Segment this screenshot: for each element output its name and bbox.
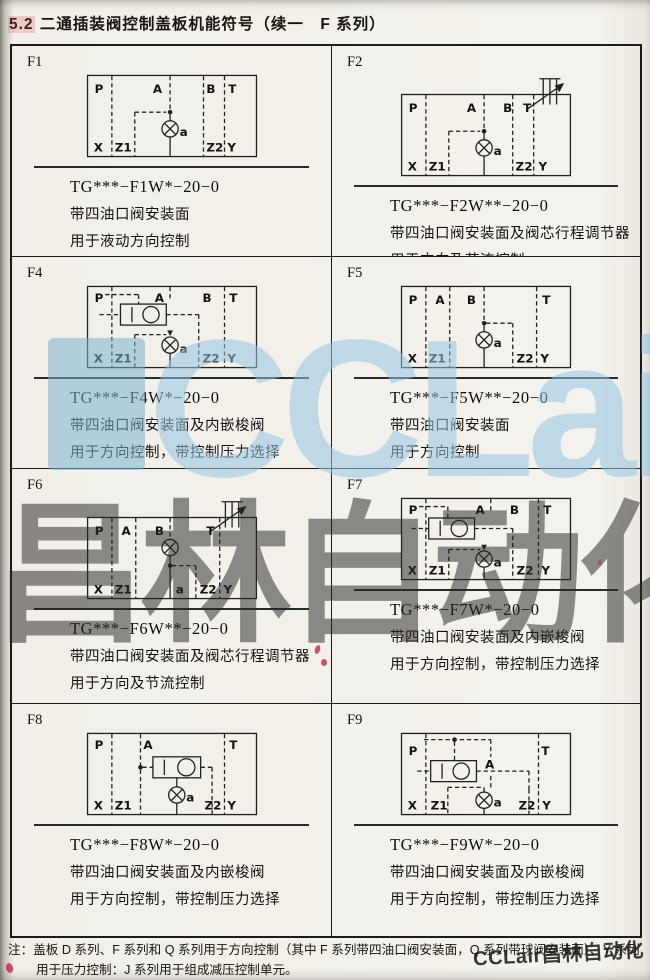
port-label: Y <box>226 351 236 365</box>
title-text: 二通插装阀控制盖板机能符号（续一 F 系列） <box>40 16 386 33</box>
footnote-line1: 盖板 D 系列、F 系列和 Q 系列用于方向控制（其中 F 系列带四油口阀安装面… <box>33 943 639 957</box>
separator-line <box>34 377 308 379</box>
port-label: T <box>543 503 552 517</box>
port-label: X <box>93 798 102 812</box>
hydraulic-diagram-f5: P A B T X Z1 a Z2 Y <box>332 285 640 369</box>
port-label: A <box>485 757 495 771</box>
port-label: P <box>94 291 103 305</box>
port-label: A <box>154 291 164 305</box>
port-label: Z1 <box>429 159 446 173</box>
port-label: P <box>94 82 103 96</box>
port-label: B <box>154 524 163 538</box>
valve-label: a <box>494 336 502 350</box>
port-label: A <box>467 101 477 115</box>
cell-f5: F5 P A B T X Z1 a Z2 Y <box>332 257 640 469</box>
desc1-f9: 带四油口阀安装面及内嵌梭阀 <box>390 861 640 882</box>
valve-label: a <box>494 144 502 158</box>
scanned-catalog-page: 5.2 二通插装阀控制盖板机能符号（续一 F 系列） F1 P A B T X <box>0 0 650 980</box>
port-label: T <box>229 738 238 752</box>
desc2-f6: 用于方向及节流控制 <box>70 672 331 693</box>
cell-f1: F1 P A B T X Z1 a Z2 Y <box>12 46 332 257</box>
cell-f8: F8 P A T X Z1 a <box>12 704 332 936</box>
desc1-f7: 带四油口阀安装面及内嵌梭阀 <box>390 626 640 647</box>
port-label: B <box>510 503 519 517</box>
separator-line <box>354 185 619 187</box>
cell-id-f9: F9 <box>332 704 640 729</box>
valve-label: a <box>179 342 187 356</box>
port-label: Z1 <box>431 798 448 812</box>
model-code-f7: TG***−F7W*−20−0 <box>390 600 640 620</box>
hydraulic-diagram-f7: P A B T X Z1 a Z2 Y <box>332 497 640 581</box>
cell-f4: F4 P A B T X Z1 <box>12 257 332 469</box>
valve-label: a <box>494 556 502 570</box>
model-code-f6: TG***−F6W**−20−0 <box>70 619 331 639</box>
port-label: Y <box>222 582 232 596</box>
port-label: Z2 <box>202 351 219 365</box>
valve-label: a <box>179 125 187 139</box>
port-label: Z1 <box>114 798 131 812</box>
port-label: P <box>409 293 418 307</box>
schematic-f1-svg: P A B T X Z1 a Z2 Y <box>86 74 258 158</box>
hydraulic-diagram-f6: P A B T X Z1 a Z2 Y <box>12 497 331 600</box>
desc1-f1: 带四油口阀安装面 <box>70 203 331 224</box>
desc2-f4: 用于方向控制，带控制压力选择 <box>70 441 331 462</box>
model-code-f8: TG***−F8W*−20−0 <box>70 835 331 855</box>
hydraulic-diagram-f2: P A B T X Z1 a Z2 Y <box>332 74 640 177</box>
desc2-f8: 用于方向控制，带控制压力选择 <box>70 888 331 909</box>
desc2-f2: 用于方向及节流控制 <box>390 249 640 257</box>
port-label: Z1 <box>114 351 131 365</box>
footnote-label: 注： <box>8 943 33 957</box>
desc1-f5: 带四油口阀安装面 <box>390 414 640 435</box>
port-label: Z1 <box>429 563 446 577</box>
port-label: X <box>93 140 102 154</box>
model-code-f5: TG***−F5W**−20−0 <box>390 388 640 408</box>
separator-line <box>34 166 308 168</box>
separator-line <box>354 824 619 826</box>
hydraulic-diagram-f9: P A T X Z1 a Z2 Y <box>332 732 640 816</box>
symbol-table: F1 P A B T X Z1 a Z2 Y <box>10 44 642 938</box>
port-label: X <box>93 582 102 596</box>
cell-f9: F9 P A T X Z1 a <box>332 704 640 936</box>
schematic-f6-svg: P A B T X Z1 a Z2 Y <box>86 497 258 600</box>
desc1-f8: 带四油口阀安装面及内嵌梭阀 <box>70 861 331 882</box>
port-label: A <box>476 503 486 517</box>
cell-id-f6: F6 <box>12 469 331 494</box>
port-label: T <box>206 524 215 538</box>
port-label: B <box>202 291 211 305</box>
cell-id-f4: F4 <box>12 257 331 282</box>
port-label: Z2 <box>517 563 534 577</box>
port-label: Z2 <box>199 582 216 596</box>
section-number: 5.2 <box>8 16 35 33</box>
port-label: A <box>435 293 445 307</box>
port-label: Y <box>226 140 236 154</box>
schematic-f7-svg: P A B T X Z1 a Z2 Y <box>400 497 572 581</box>
schematic-f4-svg: P A B T X Z1 a Z2 Y <box>86 285 258 369</box>
port-label: P <box>409 744 418 758</box>
cell-f6: F6 P A B T X Z1 a Z2 <box>12 469 332 704</box>
footnote-line2: 用于压力控制：J 系列用于组成减压控制单元。 <box>36 961 644 980</box>
pen-mark <box>321 659 327 666</box>
port-label: X <box>408 159 417 173</box>
schematic-f2-svg: P A B T X Z1 a Z2 Y <box>400 74 572 177</box>
port-label: A <box>143 738 153 752</box>
valve-label: a <box>494 795 502 809</box>
schematic-f8-svg: P A T X Z1 a Z2 Y <box>86 732 258 816</box>
desc2-f1: 用于液动方向控制 <box>70 230 331 251</box>
port-label: Z2 <box>206 140 223 154</box>
hydraulic-diagram-f1: P A B T X Z1 a Z2 Y <box>12 74 331 158</box>
port-label: T <box>542 293 551 307</box>
port-label: T <box>229 291 238 305</box>
desc1-f4: 带四油口阀安装面及内嵌梭阀 <box>70 414 331 435</box>
port-label: B <box>503 101 512 115</box>
schematic-f9-svg: P A T X Z1 a Z2 Y <box>400 732 572 816</box>
port-label: Z2 <box>516 159 533 173</box>
separator-line <box>34 608 308 610</box>
port-label: T <box>523 101 532 115</box>
separator-line <box>354 377 619 379</box>
port-label: Z1 <box>429 351 446 365</box>
port-label: Z2 <box>518 798 535 812</box>
port-label: B <box>467 293 476 307</box>
port-label: Z1 <box>114 582 131 596</box>
model-code-f1: TG***−F1W*−20−0 <box>70 177 331 197</box>
separator-line <box>34 824 308 826</box>
cell-id-f7: F7 <box>332 469 640 494</box>
page-title: 5.2 二通插装阀控制盖板机能符号（续一 F 系列） <box>8 12 608 34</box>
port-label: P <box>409 101 418 115</box>
port-label: Z2 <box>517 351 534 365</box>
port-label: X <box>93 351 102 365</box>
port-label: X <box>408 563 417 577</box>
desc1-f2: 带四油口阀安装面及阀芯行程调节器 <box>390 222 640 243</box>
port-label: Y <box>537 159 547 173</box>
cell-f7: F7 P A B T X Z1 <box>332 469 640 704</box>
port-label: Y <box>226 798 236 812</box>
footnote: 注：盖板 D 系列、F 系列和 Q 系列用于方向控制（其中 F 系列带四油口阀安… <box>8 941 644 980</box>
cell-f2: F2 P A B T X Z1 a <box>332 46 640 257</box>
port-label: P <box>94 524 103 538</box>
valve-label: a <box>186 791 194 805</box>
port-label: B <box>206 82 215 96</box>
model-code-f9: TG***−F9W*−20−0 <box>390 835 640 855</box>
hydraulic-diagram-f8: P A T X Z1 a Z2 Y <box>12 732 331 816</box>
desc2-f7: 用于方向控制，带控制压力选择 <box>390 653 640 674</box>
model-code-f2: TG***−F2W**−20−0 <box>390 196 640 216</box>
port-label: X <box>408 798 417 812</box>
port-label: P <box>409 503 418 517</box>
desc2-f9: 用于方向控制，带控制压力选择 <box>390 888 640 909</box>
port-label: T <box>541 744 550 758</box>
schematic-f5-svg: P A B T X Z1 a Z2 Y <box>400 285 572 369</box>
port-label: P <box>94 738 103 752</box>
model-code-f4: TG***−F4W*−20−0 <box>70 388 331 408</box>
port-label: X <box>408 351 417 365</box>
port-label: Y <box>540 563 550 577</box>
cell-id-f8: F8 <box>12 704 331 729</box>
port-label: A <box>121 524 131 538</box>
desc2-f5: 用于方向控制 <box>390 441 640 462</box>
port-label: Z2 <box>204 798 221 812</box>
port-label: Y <box>541 798 551 812</box>
cell-id-f5: F5 <box>332 257 640 282</box>
separator-line <box>354 589 619 591</box>
port-label: Y <box>539 351 549 365</box>
hydraulic-diagram-f4: P A B T X Z1 a Z2 Y <box>12 285 331 369</box>
pen-mark <box>598 560 602 566</box>
desc1-f6: 带四油口阀安装面及阀芯行程调节器 <box>70 645 331 666</box>
valve-label: a <box>175 582 183 596</box>
cell-id-f2: F2 <box>332 46 640 71</box>
port-label: T <box>228 82 237 96</box>
cell-id-f1: F1 <box>12 46 331 71</box>
port-label: A <box>152 82 162 96</box>
port-label: Z1 <box>114 140 131 154</box>
